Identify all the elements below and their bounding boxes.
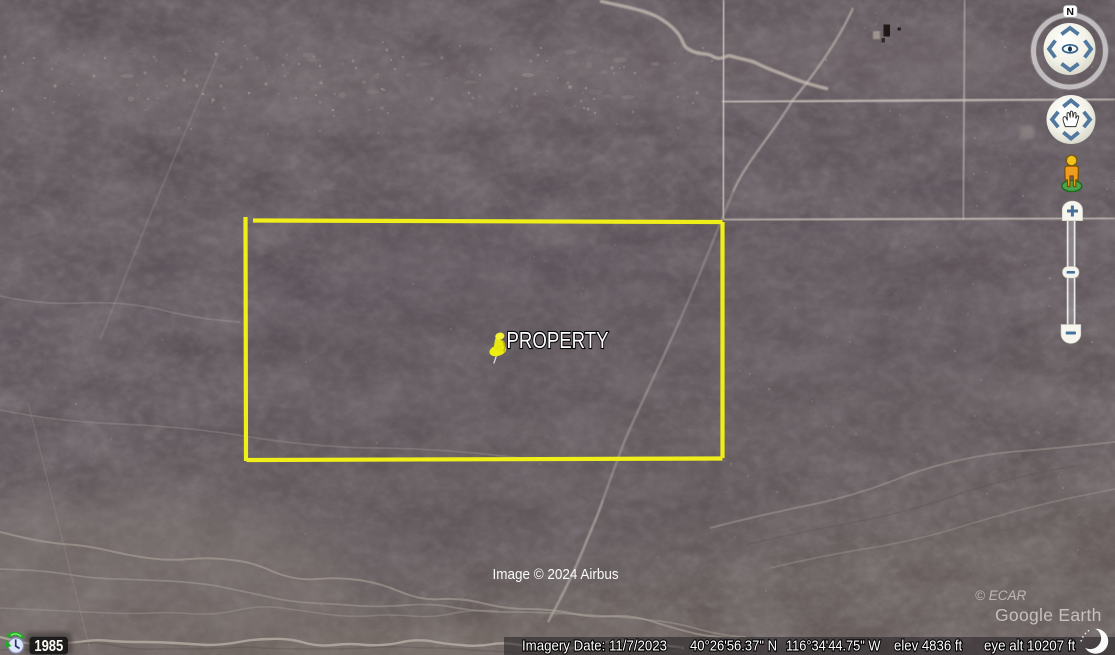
svg-text:116°34'44.75" W: 116°34'44.75" W	[786, 637, 881, 654]
svg-text:Image © 2024 Airbus: Image © 2024 Airbus	[493, 566, 619, 583]
svg-text:Google Earth: Google Earth	[995, 605, 1102, 625]
svg-text:elev 4836 ft: elev 4836 ft	[894, 637, 962, 654]
svg-text:1985: 1985	[34, 638, 63, 655]
svg-text:40°26'56.37" N: 40°26'56.37" N	[690, 637, 777, 654]
svg-text:eye alt 10207 ft: eye alt 10207 ft	[984, 638, 1075, 655]
svg-text:Imagery Date: 11/7/2023: Imagery Date: 11/7/2023	[522, 638, 667, 655]
svg-text:PROPERTY: PROPERTY	[507, 328, 609, 353]
svg-text:© ECAR: © ECAR	[975, 588, 1026, 603]
svg-text:N: N	[1066, 6, 1074, 18]
